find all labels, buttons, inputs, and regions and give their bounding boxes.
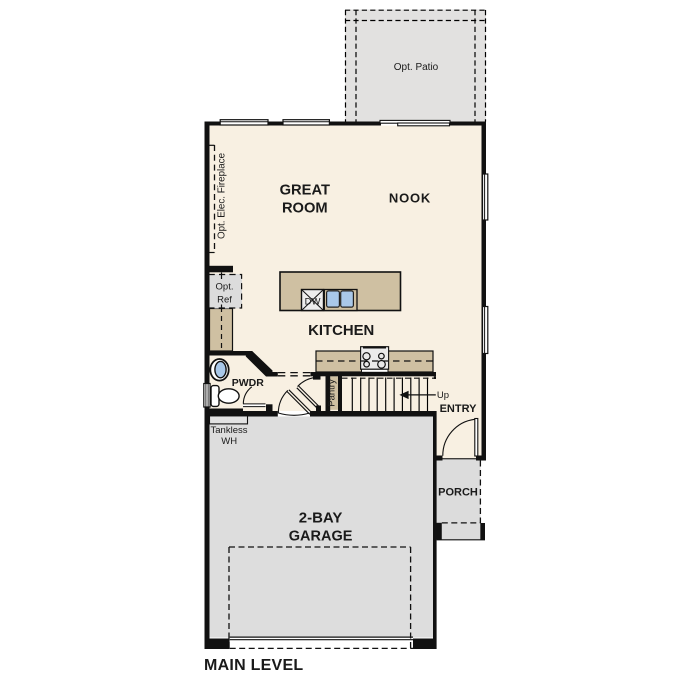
svg-text:KITCHEN: KITCHEN	[308, 323, 374, 339]
svg-text:MAIN LEVEL: MAIN LEVEL	[204, 657, 303, 674]
svg-text:Opt. Patio: Opt. Patio	[394, 62, 439, 73]
svg-text:Ref: Ref	[217, 295, 232, 306]
svg-text:ENTRY: ENTRY	[440, 403, 478, 415]
svg-text:Tankless: Tankless	[211, 425, 248, 436]
svg-text:GARAGE: GARAGE	[289, 528, 353, 544]
svg-text:Pantry: Pantry	[326, 379, 337, 407]
svg-text:Opt.: Opt.	[216, 282, 234, 293]
svg-text:DW: DW	[305, 296, 321, 307]
svg-text:NOOK: NOOK	[389, 191, 431, 206]
svg-text:WH: WH	[221, 436, 237, 447]
svg-text:PORCH: PORCH	[438, 487, 478, 499]
svg-text:GREAT: GREAT	[280, 182, 330, 198]
svg-text:ROOM: ROOM	[282, 200, 328, 216]
svg-text:Opt. Elec. Fireplace: Opt. Elec. Fireplace	[217, 152, 228, 239]
svg-text:PWDR: PWDR	[232, 377, 264, 389]
svg-text:Up: Up	[437, 390, 449, 401]
svg-text:2-BAY: 2-BAY	[299, 509, 343, 526]
